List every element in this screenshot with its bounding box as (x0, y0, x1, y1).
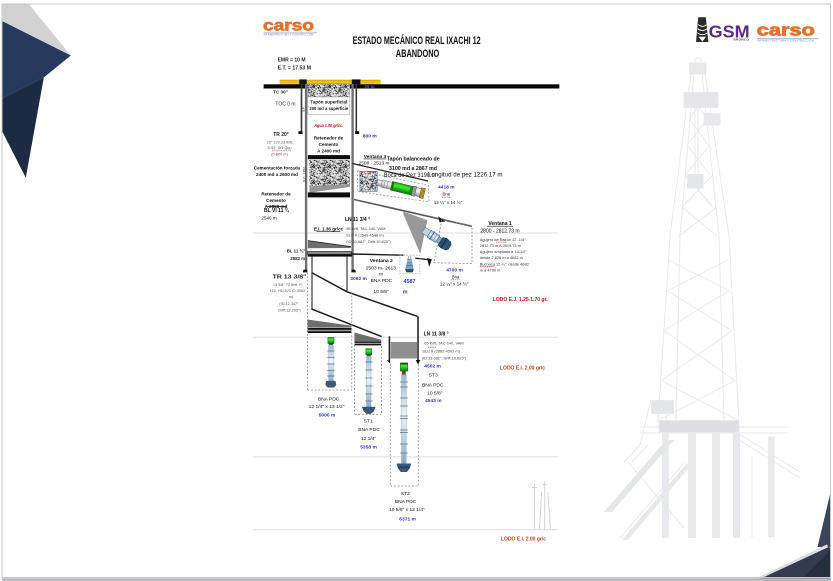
svg-text:Ventana 2: Ventana 2 (370, 258, 393, 264)
svg-text:(0-800 m): (0-800 m) (271, 152, 288, 156)
svg-text:2882 m: 2882 m (290, 256, 305, 261)
svg-text:carso: carso (263, 18, 314, 35)
svg-text:TR 20°: TR 20° (273, 132, 289, 138)
svg-text:2400 md a 2600 md: 2400 md a 2600 md (256, 172, 298, 177)
svg-text:LN 11 3/4 °: LN 11 3/4 ° (345, 217, 370, 223)
svg-text:4502 m: 4502 m (424, 363, 441, 369)
svg-text:Longitud de pez 1226.17 m: Longitud de pez 1226.17 m (428, 173, 503, 179)
svg-text:20" 129.33 lb/ft,: 20" 129.33 lb/ft, (267, 141, 293, 145)
svg-text:2508 - 2513 m: 2508 - 2513 m (359, 161, 390, 167)
svg-text:LODO E.I. 2.00 gr/c: LODO E.I. 2.00 gr/c (500, 365, 545, 371)
svg-text:m): m) (289, 295, 294, 299)
svg-text:X-52. Drll Qup: X-52. Drll Qup (267, 146, 291, 150)
svg-text:Drift:12.253"): Drift:12.253") (278, 308, 301, 312)
svg-text:200 md a superficie: 200 md a superficie (309, 106, 349, 111)
svg-text:5000 m: 5000 m (319, 413, 336, 419)
svg-text:6371 m: 6371 m (399, 517, 416, 523)
svg-text:4700 m: 4700 m (446, 268, 463, 274)
svg-text:EMR = 10 M: EMR = 10 M (278, 57, 306, 63)
svg-text:Buchaca 12-¼": desde 4682: Buchaca 12-¼": desde 4682 (480, 261, 529, 266)
svg-text:Retenedor de: Retenedor de (314, 135, 344, 140)
svg-text:ESTADO MECÁNICO REAL IXACHI 12: ESTADO MECÁNICO REAL IXACHI 12 (353, 34, 481, 47)
svg-text:65 lb/ft, TAC-140, VAM: 65 lb/ft, TAC-140, VAM (424, 340, 463, 345)
svg-text:Tapón balanceado de: Tapón balanceado de (387, 156, 440, 162)
svg-text:LODO E.I. 2.00 gr/c: LODO E.I. 2.00 gr/c (501, 537, 546, 543)
svg-text:BNA PDC: BNA PDC (395, 499, 417, 505)
svg-text:(ID:12.347",: (ID:12.347", (279, 302, 299, 306)
svg-text:carso: carso (757, 21, 815, 39)
svg-text:2800 - 2812.73 m: 2800 - 2812.73 m (480, 228, 519, 234)
svg-text:12 1/4": 12 1/4" (361, 436, 377, 442)
svg-text:TR 13 3/8": TR 13 3/8" (273, 274, 308, 280)
svg-text:BRONCO: BRONCO (733, 38, 749, 42)
svg-text:95 lb/ft, TAC-140, VAM: 95 lb/ft, TAC-140, VAM (346, 226, 385, 231)
svg-text:ABANDONO: ABANDONO (396, 48, 440, 60)
svg-text:m: m (379, 272, 383, 277)
svg-text:(ID:13.682", Drift:10.625"): (ID:13.682", Drift:10.625") (422, 355, 467, 360)
svg-text:Bna: Bna (442, 192, 450, 197)
svg-text:E.T. = 17.53 M: E.T. = 17.53 M (278, 66, 312, 72)
svg-text:ST2: ST2 (401, 491, 410, 497)
svg-text:12 ¼" x 14 ½": 12 ¼" x 14 ½" (434, 199, 463, 205)
svg-text:Bna: Bna (452, 274, 460, 279)
svg-text:Agujero ampliado a 14-1/2": Agujero ampliado a 14-1/2" (480, 249, 528, 254)
svg-text:A 2400 md: A 2400 md (317, 149, 340, 154)
svg-text:4543 m: 4543 m (425, 398, 442, 404)
svg-text:INFRAESTRUCTURA Y CONSTRUCCIÓN: INFRAESTRUCTURA Y CONSTRUCCIÓN .. (757, 40, 817, 43)
svg-text:800 m: 800 m (363, 134, 378, 140)
svg-text:BL 11 ¾": BL 11 ¾" (287, 248, 306, 253)
svg-text:3092 m: 3092 m (350, 276, 367, 282)
svg-text:Agua 1.00 gr/cc.: Agua 1.00 gr/cc. (314, 123, 344, 129)
svg-text:BNA PDC: BNA PDC (422, 382, 444, 388)
svg-text:2812.73 m A 2819.73 m: 2812.73 m A 2819.73 m (480, 243, 521, 248)
svg-text:110, HD-521 (0-3062: 110, HD-521 (0-3062 (270, 289, 305, 293)
svg-text:10 5/8": 10 5/8" (427, 390, 443, 396)
svg-text:13 3/8" 72 lb/ft, P-: 13 3/8" 72 lb/ft, P- (273, 283, 304, 287)
svg-text:4587: 4587 (404, 279, 416, 285)
svg-text:LODO E.J. 1.25-1.70 gr.: LODO E.J. 1.25-1.70 gr. (493, 297, 548, 303)
svg-text:Cemento: Cemento (319, 142, 339, 147)
svg-text:BL VI 11 ¾: BL VI 11 ¾ (264, 207, 290, 214)
svg-text:SLIJ II (2882-4502 m): SLIJ II (2882-4502 m) (422, 348, 460, 353)
svg-text:BNA PDC: BNA PDC (371, 278, 393, 284)
svg-text:Tapón superficial: Tapón superficial (310, 100, 347, 105)
svg-text:m a 4700 m: m a 4700 m (480, 267, 501, 272)
svg-text:20 m: 20 m (365, 84, 375, 89)
svg-text:TC 30": TC 30" (273, 90, 288, 95)
svg-text:ST3: ST3 (429, 372, 438, 378)
svg-text:ST1: ST1 (364, 419, 373, 425)
svg-text:12 1/4" x 13 1/2": 12 1/4" x 13 1/2" (309, 404, 345, 410)
svg-text:2546 m: 2546 m (261, 215, 276, 220)
svg-text:S.C. 1350: S.C. 1350 (303, 167, 307, 182)
svg-text:BNA PDC: BNA PDC (318, 396, 340, 402)
svg-text:5358 m: 5358 m (360, 444, 377, 450)
svg-text:desde 2,828 m a 4682 m: desde 2,828 m a 4682 m (480, 255, 523, 260)
svg-text:Retenedor de: Retenedor de (261, 192, 291, 197)
svg-text:10 5/8": 10 5/8" (373, 289, 389, 295)
svg-text:m: m (403, 289, 408, 295)
svg-text:Cemento: Cemento (266, 198, 286, 203)
svg-text:(ID:10.682", Drift:10.625"): (ID:10.682", Drift:10.625") (346, 239, 391, 244)
svg-text:SLIJ II (3549-4548 m): SLIJ II (3549-4548 m) (346, 232, 384, 237)
svg-text:Agujero de Razón 12 -1/4":: Agujero de Razón 12 -1/4": (480, 237, 527, 242)
svg-text:BNA PDC: BNA PDC (358, 427, 380, 433)
svg-text:LN 11 3/8 °: LN 11 3/8 ° (424, 332, 449, 338)
svg-text:4418 m: 4418 m (438, 184, 455, 190)
svg-text:S.F.: S.F. (301, 106, 305, 112)
svg-text:E.I. 1.36 gr/cc: E.I. 1.36 gr/cc (314, 227, 344, 232)
svg-text:2503 m- 2613: 2503 m- 2613 (366, 265, 396, 271)
svg-text:3100 md a 2867 md: 3100 md a 2867 md (389, 166, 437, 172)
svg-text:Cementación forzada: Cementación forzada (254, 166, 301, 171)
svg-text:INFRAESTRUCTURA Y CONSTRUCCIÓN: INFRAESTRUCTURA Y CONSTRUCCIÓN .. (264, 34, 317, 37)
svg-text:TOC 0 m: TOC 0 m (275, 102, 295, 108)
svg-text:10 5/8" x 12 1/4": 10 5/8" x 12 1/4" (389, 507, 425, 513)
svg-text:12 ¼" x 14 ½": 12 ¼" x 14 ½" (440, 281, 469, 287)
